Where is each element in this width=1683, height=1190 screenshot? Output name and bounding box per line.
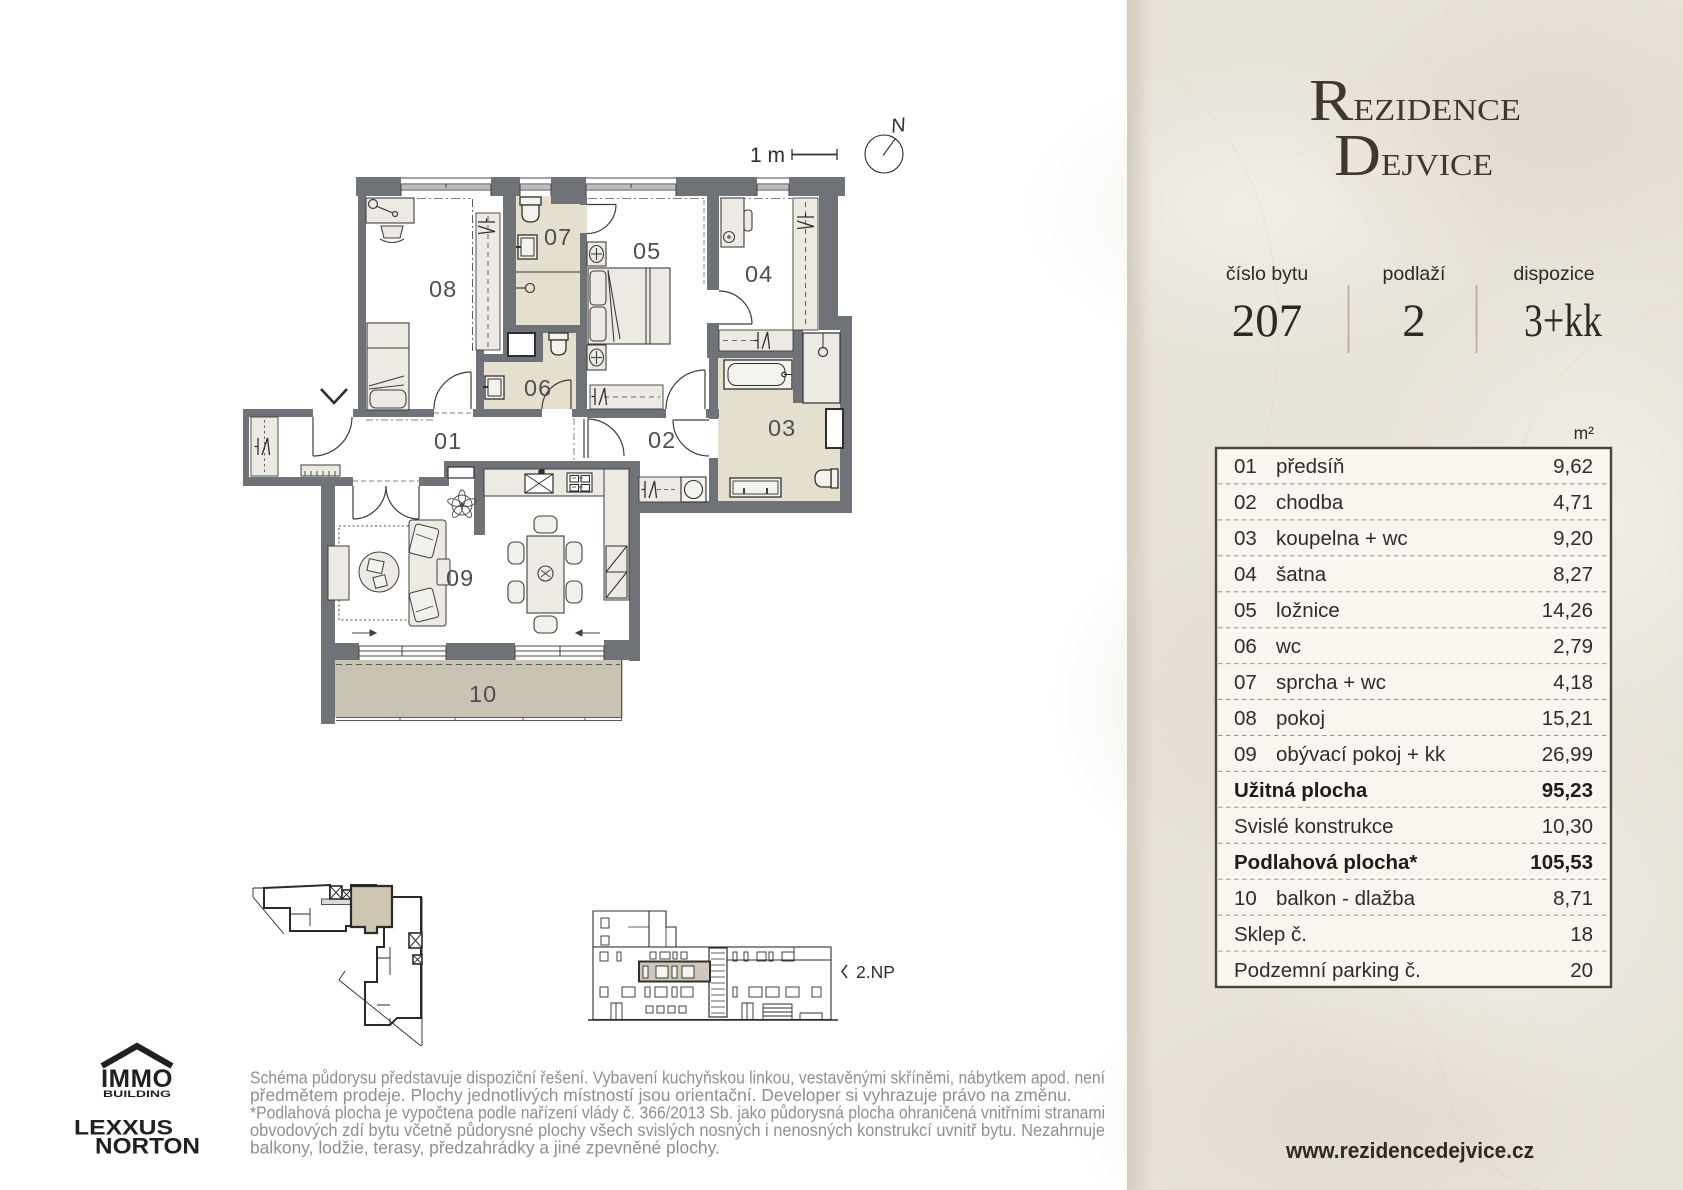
svg-text:1 m: 1 m	[750, 144, 785, 167]
svg-text:01: 01	[434, 428, 462, 454]
svg-text:3+kk: 3+kk	[1524, 295, 1602, 347]
svg-text:07: 07	[1234, 671, 1257, 694]
svg-text:BUILDING: BUILDING	[103, 1089, 171, 1099]
svg-text:07: 07	[544, 224, 572, 250]
svg-text:sprcha + wc: sprcha + wc	[1276, 671, 1386, 694]
svg-text:15,21: 15,21	[1542, 707, 1593, 730]
svg-text:08: 08	[1234, 707, 1257, 730]
svg-text:105,53: 105,53	[1530, 851, 1593, 874]
svg-text:09: 09	[446, 565, 474, 591]
svg-text:NORTON: NORTON	[95, 1134, 200, 1159]
svg-text:číslo bytu: číslo bytu	[1226, 263, 1308, 285]
svg-text:9,62: 9,62	[1553, 455, 1593, 478]
svg-text:balkony, lodžie, terasy, předz: balkony, lodžie, terasy, předzahrádky a …	[250, 1138, 720, 1158]
svg-text:předsíň: předsíň	[1276, 455, 1344, 478]
svg-text:Svislé konstrukce: Svislé konstrukce	[1234, 815, 1394, 838]
svg-text:03: 03	[1234, 527, 1257, 550]
svg-text:10,30: 10,30	[1542, 815, 1593, 838]
svg-text:chodba: chodba	[1276, 491, 1344, 514]
svg-text:06: 06	[1234, 635, 1257, 658]
svg-text:balkon - dlažba: balkon - dlažba	[1276, 887, 1416, 910]
svg-text:10: 10	[469, 681, 497, 707]
svg-text:2.NP: 2.NP	[856, 962, 895, 982]
svg-text:207: 207	[1232, 295, 1303, 347]
svg-text:26,99: 26,99	[1542, 743, 1593, 766]
svg-text:04: 04	[1234, 563, 1257, 586]
svg-text:8,71: 8,71	[1553, 887, 1593, 910]
svg-text:4,71: 4,71	[1553, 491, 1593, 514]
svg-text:Sklep č.: Sklep č.	[1234, 923, 1307, 946]
svg-text:10: 10	[1234, 887, 1257, 910]
svg-text:14,26: 14,26	[1542, 599, 1593, 622]
svg-text:Užitná plocha: Užitná plocha	[1234, 779, 1368, 802]
svg-text:06: 06	[524, 375, 552, 401]
svg-text:www.rezidencedejvice.cz: www.rezidencedejvice.cz	[1285, 1138, 1534, 1163]
svg-text:2: 2	[1402, 295, 1426, 347]
svg-text:dispozice: dispozice	[1513, 263, 1594, 285]
svg-text:01: 01	[1234, 455, 1257, 478]
svg-text:95,23: 95,23	[1542, 779, 1593, 802]
svg-text:8,27: 8,27	[1553, 563, 1593, 586]
svg-text:04: 04	[745, 261, 773, 287]
svg-text:4,18: 4,18	[1553, 671, 1593, 694]
svg-text:Podlahová plocha*: Podlahová plocha*	[1234, 851, 1417, 874]
svg-text:05: 05	[1234, 599, 1257, 622]
svg-text:2,79: 2,79	[1553, 635, 1593, 658]
svg-text:08: 08	[429, 276, 457, 302]
svg-text:podlaží: podlaží	[1383, 263, 1446, 285]
svg-text:N: N	[890, 114, 908, 138]
svg-text:wc: wc	[1275, 635, 1301, 658]
svg-text:pokoj: pokoj	[1276, 707, 1325, 730]
svg-text:02: 02	[648, 427, 676, 453]
svg-text:05: 05	[633, 238, 661, 264]
svg-text:09: 09	[1234, 743, 1257, 766]
svg-text:18: 18	[1570, 923, 1593, 946]
svg-text:20: 20	[1570, 959, 1593, 982]
svg-text:obývací pokoj + kk: obývací pokoj + kk	[1276, 743, 1446, 766]
svg-text:03: 03	[768, 415, 796, 441]
svg-text:9,20: 9,20	[1553, 527, 1593, 550]
svg-text:m²: m²	[1574, 423, 1595, 443]
svg-text:02: 02	[1234, 491, 1257, 514]
svg-text:šatna: šatna	[1276, 563, 1327, 586]
svg-text:koupelna + wc: koupelna + wc	[1276, 527, 1408, 550]
svg-text:ložnice: ložnice	[1276, 599, 1340, 622]
svg-text:Podzemní parking č.: Podzemní parking č.	[1234, 959, 1421, 982]
